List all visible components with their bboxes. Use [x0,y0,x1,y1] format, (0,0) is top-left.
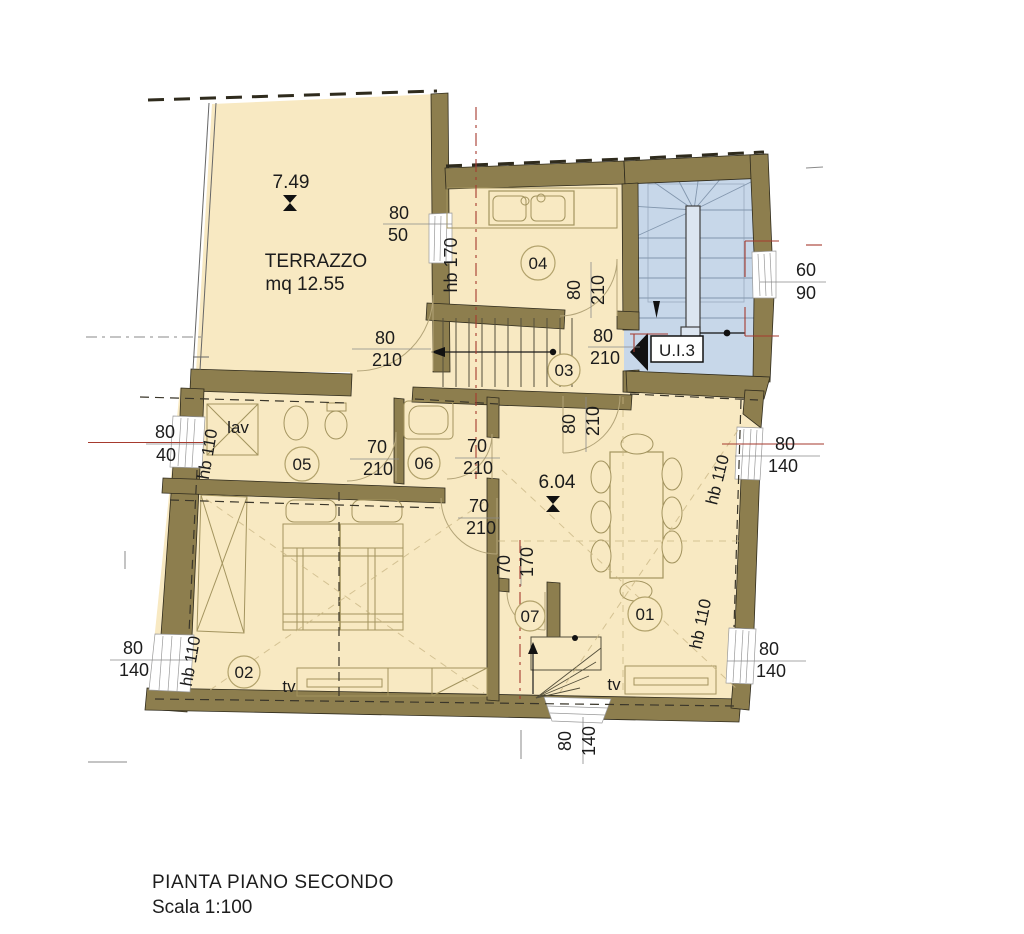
label-terrace-name: TERRAZZO [265,251,367,272]
window-60-90 [752,251,776,298]
label-hb-170: hb 170 [441,237,461,292]
label-door-05-a: 70 [367,437,387,457]
label-win-left2-b: 140 [119,660,149,680]
label-door-kitchen-b: 210 [588,275,608,305]
dining-table [610,452,663,578]
label-door-02-b: 210 [466,518,496,538]
label-win-80-50-b: 50 [388,225,408,245]
label-win-right2-a: 80 [759,639,779,659]
label-door-living-a: 80 [559,414,579,434]
room-badge-04: 04 [521,246,555,280]
label-terrace-height: 7.49 [273,172,310,193]
floor-plan-sheet: 01020304050607 7.49TERRAZZOmq 12.558050h… [0,0,1024,934]
room-badge-07: 07 [515,601,545,631]
label-door-05-b: 210 [363,459,393,479]
svg-text:05: 05 [293,455,312,474]
label-win-right2-b: 140 [756,661,786,681]
label-win-bottom-b: 140 [579,726,599,756]
label-win-right1-b: 140 [768,456,798,476]
label-door-06-a: 70 [467,436,487,456]
label-tv-01: tv [607,675,621,694]
label-door-ui3-a: 80 [593,326,613,346]
label-main-height: 6.04 [539,472,576,493]
svg-text:03: 03 [555,361,574,380]
label-win-80-40-b: 40 [156,445,176,465]
label-terrace-area: mq 12.55 [265,274,344,295]
label-door-ui3-b: 210 [590,348,620,368]
label-door-terrace-b: 210 [372,350,402,370]
drawing-title: PIANTA PIANO SECONDO [152,872,394,894]
label-win-60-90-a: 60 [796,260,816,280]
title-block: PIANTA PIANO SECONDO Scala 1:100 [152,872,394,919]
window-80-140-bottom [544,697,611,723]
room-badge-05: 05 [285,447,319,481]
room-badge-06: 06 [408,447,440,479]
label-ui3-label: U.I.3 [659,341,695,360]
label-win-80-50-a: 80 [389,203,409,223]
room-badge-02: 02 [228,656,260,688]
label-door-terrace-a: 80 [375,328,395,348]
label-pass-07-b: 170 [517,547,537,577]
svg-text:01: 01 [636,605,655,624]
label-door-02-a: 70 [469,496,489,516]
room-badge-03: 03 [548,354,580,386]
svg-text:07: 07 [521,607,540,626]
label-win-bottom-a: 80 [555,731,575,751]
label-pass-07-a: 70 [494,555,514,575]
label-win-left2-a: 80 [123,638,143,658]
floor-plan-drawing: 01020304050607 7.49TERRAZZOmq 12.558050h… [0,0,1024,934]
svg-text:02: 02 [235,663,254,682]
label-lav-label: lav [227,418,249,437]
window-80-140-right2 [726,628,756,684]
drawing-scale: Scala 1:100 [152,897,394,919]
label-door-living-b: 210 [583,406,603,436]
label-door-kitchen-a: 80 [564,280,584,300]
label-win-80-40-a: 80 [155,422,175,442]
room-badge-01: 01 [628,597,662,631]
label-win-right1-a: 80 [775,434,795,454]
svg-text:06: 06 [415,454,434,473]
svg-text:04: 04 [529,254,548,273]
label-door-06-b: 210 [463,458,493,478]
label-win-60-90-b: 90 [796,283,816,303]
label-tv-02: tv [282,677,296,696]
